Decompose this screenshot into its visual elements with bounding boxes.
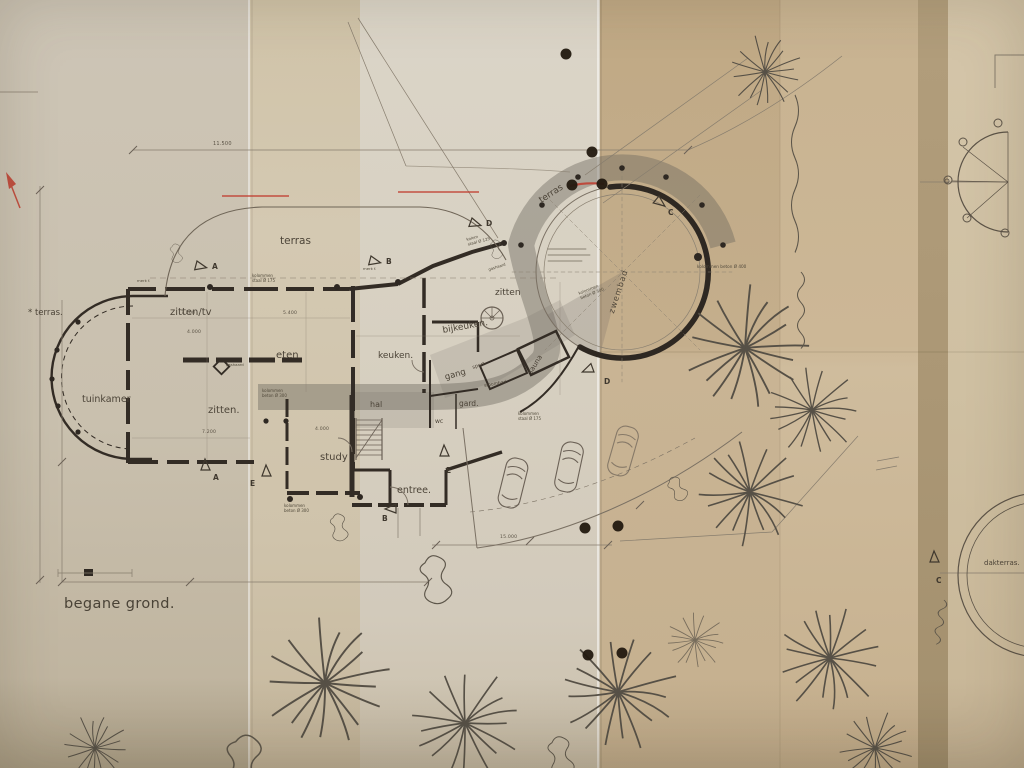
room-label-terras-top: terras: [280, 236, 311, 248]
section-marker-e: E: [446, 466, 451, 475]
car-outline: [496, 456, 529, 510]
section-marker-b: B: [382, 514, 388, 523]
annotation-merk: merk f.: [363, 267, 376, 272]
red-pen-marks: [6, 172, 604, 208]
dimension: 5.400: [283, 311, 297, 316]
room-label-gard: gard.: [459, 400, 478, 408]
room-label-zitten-sunken: zitten: [495, 289, 521, 299]
room-label-dakterras: dakterras.: [984, 560, 1020, 568]
section-marker-a: A: [213, 473, 219, 482]
room-label-hal: hal: [370, 401, 382, 410]
annotation-kolommen: kolommen beton Ø 400: [697, 265, 746, 270]
room-label-tuinkamer: tuinkamer: [82, 395, 131, 405]
annotation-kolommen: kolommen staal Ø 175: [252, 274, 275, 284]
detail-circle-top-right: [944, 119, 1009, 237]
room-label-keuken: keuken.: [378, 352, 413, 362]
dimension-lines: [0, 18, 1024, 586]
room-label-study: study: [320, 452, 348, 463]
terrace-arch: [165, 207, 506, 296]
section-marker-d: D: [486, 219, 492, 228]
section-marker-c: C: [668, 208, 674, 217]
section-marker-d: D: [604, 377, 610, 386]
plan-drawing: [0, 0, 1024, 768]
room-label-terras-left: * terras.: [28, 309, 63, 318]
dakterras-circle: [958, 493, 1024, 657]
annotation-kolommen: kolommen beton Ø 300: [284, 504, 309, 514]
annotation-gashaard: gashaard: [226, 363, 244, 368]
car-outline: [553, 440, 585, 493]
floor-plan-title: begane grond.: [64, 596, 175, 612]
section-marker-b: B: [386, 257, 392, 266]
dimension: 7.200: [181, 311, 195, 316]
room-label-eten: eten: [276, 350, 299, 361]
room-label-wc: wc: [435, 419, 443, 426]
annotation-kolommen: kolommen beton Ø 300: [262, 389, 287, 399]
dimension: 4.000: [187, 330, 201, 335]
dimension-11500: 11.500: [213, 141, 232, 147]
section-marker-a: A: [212, 262, 218, 271]
annotation-merk: merk f.: [137, 279, 150, 284]
photo-of-floor-plan: * terras. tuinkamer zitten/tv eten zitte…: [0, 0, 1024, 768]
dimension: 7.200: [202, 430, 216, 435]
section-marker-e: E: [250, 479, 255, 488]
parking-terrace: [398, 428, 742, 548]
annotation-kolommen: kolommen staal Ø 175: [518, 412, 541, 422]
room-label-zitten: zitten.: [208, 405, 240, 416]
car-outline: [606, 424, 641, 478]
dimension: 4.000: [315, 427, 329, 432]
room-label-entree: entree.: [397, 486, 431, 496]
section-marker-c: C: [936, 576, 942, 585]
dimension: 15.000: [500, 535, 517, 540]
